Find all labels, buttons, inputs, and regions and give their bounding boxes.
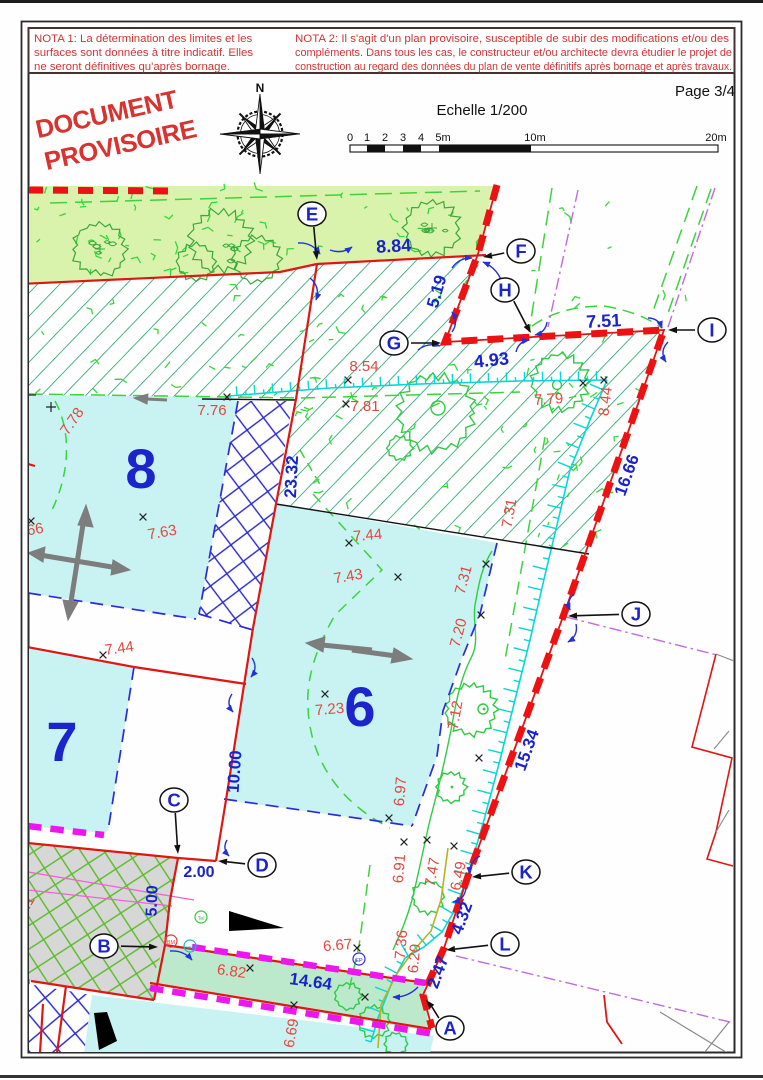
svg-text:L: L [499,934,510,955]
svg-text:2.00: 2.00 [183,864,214,881]
svg-text:4: 4 [418,132,424,144]
svg-text:5.00: 5.00 [143,885,161,917]
svg-text:C: C [167,790,180,811]
svg-text:Tel: Tel [197,916,204,922]
svg-text:Echelle 1/200: Echelle 1/200 [437,102,528,119]
svg-text:7.79: 7.79 [534,390,564,409]
svg-text:5m: 5m [435,132,450,144]
svg-text:construction au regard des don: construction au regard des données du pl… [295,61,732,73]
svg-text:8.44: 8.44 [595,386,615,417]
svg-text:6: 6 [344,675,375,738]
svg-text:K: K [519,862,533,883]
svg-text:4.93: 4.93 [473,348,510,372]
svg-text:8.84: 8.84 [376,235,412,257]
svg-text:6.20: 6.20 [405,943,424,974]
svg-text:BM: BM [167,940,176,946]
svg-text:1: 1 [364,132,370,144]
svg-text:8.54: 8.54 [349,358,378,375]
svg-text:N: N [256,81,265,95]
svg-text:6.91: 6.91 [390,853,409,884]
svg-text:10.00: 10.00 [224,750,246,794]
svg-text:E: E [306,204,318,225]
svg-text:20m: 20m [705,132,726,144]
svg-text:Page 3/4: Page 3/4 [675,83,735,100]
svg-text:AEP: AEP [185,945,195,951]
svg-text:7.81: 7.81 [350,398,379,415]
svg-text:6.97: 6.97 [391,776,410,807]
svg-text:23.32: 23.32 [281,455,302,498]
svg-text:D: D [255,855,268,876]
svg-text:10m: 10m [524,132,545,144]
svg-text:7.51: 7.51 [586,310,622,332]
svg-text:G: G [387,333,401,354]
svg-text:surfaces sont données à titre: surfaces sont données à titre indicatif.… [34,47,253,59]
svg-text:8: 8 [125,437,156,500]
svg-text:NOTA 1: La détermination des l: NOTA 1: La détermination des limites et … [34,33,253,45]
svg-text:ne seront définitives qu'aprè: ne seront définitives qu'après bornage. [34,61,230,73]
svg-text:7.76: 7.76 [197,402,226,419]
svg-text:2: 2 [382,132,388,144]
svg-text:0: 0 [347,132,353,144]
svg-text:B: B [97,936,110,957]
svg-text:3: 3 [400,132,406,144]
svg-text:compléments. Dans tous les cas: compléments. Dans tous les cas, le const… [295,47,732,59]
svg-text:A: A [443,1018,456,1039]
svg-text:7.44: 7.44 [352,526,383,545]
svg-text:H: H [498,280,511,301]
svg-text:F: F [515,241,526,262]
svg-text:I: I [709,320,714,341]
svg-text:6.67: 6.67 [322,936,353,955]
svg-text:J: J [631,604,641,625]
svg-text:7.23: 7.23 [314,700,345,719]
svg-text:7: 7 [46,710,77,773]
svg-text:EP: EP [355,958,363,964]
svg-text:NOTA 2: Il s'agit d'un plan pr: NOTA 2: Il s'agit d'un plan provisoire, … [295,33,729,45]
